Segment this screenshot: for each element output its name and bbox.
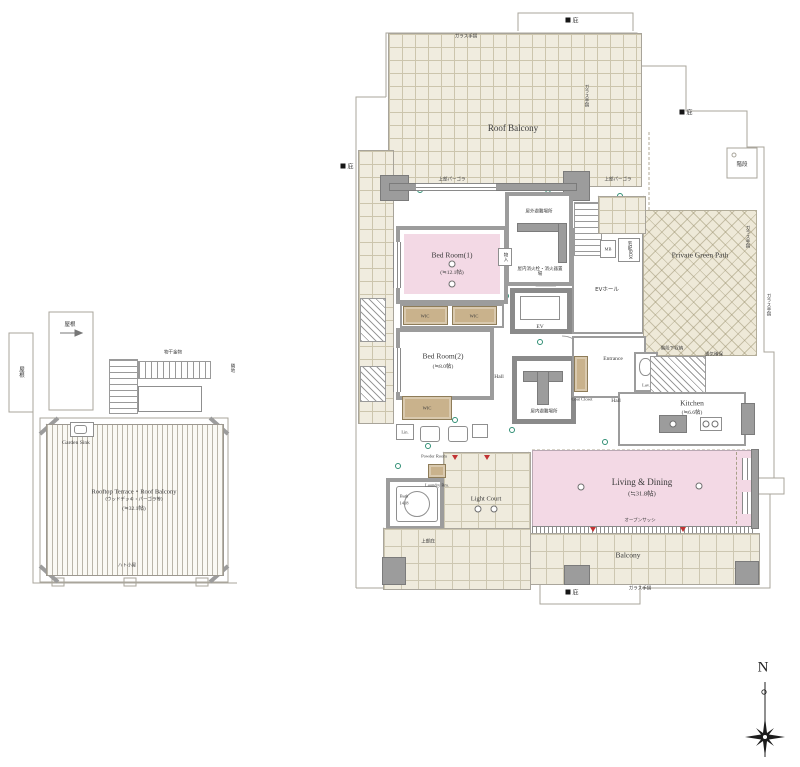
private-green-path-label: Private Green Path <box>672 252 729 261</box>
glass-rail-right2: ガラス手摺 <box>765 294 771 317</box>
burner-1 <box>703 421 710 428</box>
kitchen-name: Kitchen <box>680 400 704 409</box>
bottom-terrace-area <box>383 528 531 590</box>
refuge-inner-wall-v <box>559 224 566 262</box>
refuge-outdoor-label: 屋外避難場所 <box>526 209 553 214</box>
left-ladder-strip <box>138 361 211 379</box>
canopy-label-bottom: 庇 <box>565 588 578 597</box>
living-dining-area <box>532 450 756 528</box>
wic1-label: WIC <box>421 313 430 318</box>
hardware-label: 物干金物 <box>164 350 182 355</box>
roof-balcony-area <box>388 33 642 187</box>
glass-rail-right1: ガラス手摺 <box>744 226 750 249</box>
canopy-label-left: 庇 <box>340 162 353 171</box>
compass-north-label: N <box>758 659 769 676</box>
lav-label: Lav. <box>642 382 650 387</box>
refuge-indoor-label: 屋内避難場所 <box>531 409 558 414</box>
ev-label: EV <box>536 324 543 330</box>
roof-balcony-label: Roof Balcony <box>488 123 538 133</box>
compass-icon <box>745 682 785 757</box>
terrace-subtitle: (ウッドデッキ・パーゴラ等) <box>105 497 163 502</box>
opening-marker-1 <box>452 455 458 460</box>
louver-box-2 <box>360 366 386 402</box>
roof-b-label: 屋根 <box>64 322 75 328</box>
opening-marker-4 <box>680 527 686 532</box>
window-top-1 <box>416 183 496 191</box>
pergola-label-2: 上部パーゴラ <box>605 177 632 182</box>
canopy-label-right: 庇 <box>679 108 692 117</box>
light-symbol-ld2 <box>696 483 703 490</box>
under-stair-label: 階段下収納 <box>661 346 684 351</box>
living-dining-name: Living & Dining <box>612 477 673 487</box>
balcony-label: Balcony <box>616 552 641 561</box>
green-path-extension <box>598 196 646 234</box>
storage-box-hall <box>472 424 488 438</box>
bedroom1-area: (≒12.1帖) <box>440 270 463 276</box>
bedroom1-window-left <box>393 242 401 288</box>
light-symbol-ld1 <box>578 484 585 491</box>
pergola-label-1: 上部パーゴラ <box>439 177 466 182</box>
mb-label: MB <box>604 246 611 251</box>
open-sash-label: オープンサッシ <box>624 518 655 523</box>
opening-marker-3 <box>590 527 596 532</box>
terrace-area: (≒32.1帖) <box>122 506 145 512</box>
kitchen-area: (≒6.6帖) <box>682 410 703 416</box>
bath-label: Bath <box>400 493 409 498</box>
light-court-sym1 <box>475 506 482 513</box>
bedroom2-name: Bed Room(2) <box>422 353 463 362</box>
garden-sink-label: Garden Sink <box>62 440 90 446</box>
left-walkway <box>138 386 202 412</box>
roof-a-label: 屋根 <box>17 367 25 378</box>
laundry-box <box>428 464 446 478</box>
louver-box-1 <box>360 298 386 342</box>
bedroom2-area: (≒8.0帖) <box>433 364 454 370</box>
canopy-label-top: 庇 <box>565 16 578 25</box>
glass-rail-balcony: ガラス手摺 <box>629 586 651 591</box>
stair-box-label: 階段 <box>736 162 747 168</box>
linen-label: Lin. <box>401 429 408 434</box>
hatogoya-label: ハト小屋 <box>118 563 136 568</box>
light-symbol-br1b <box>449 281 456 288</box>
fixture-2 <box>448 426 468 442</box>
fixture-1 <box>420 426 440 442</box>
left-stairs <box>109 359 138 414</box>
wic2-label: WIC <box>470 313 479 318</box>
balcony-column-2 <box>736 562 758 584</box>
hall-label-east: Hall <box>611 398 620 404</box>
vent-label: 通気確保 <box>705 352 723 357</box>
hall-label-west: Hall <box>494 374 503 380</box>
bedroom1-name: Bed Room(1) <box>431 252 472 261</box>
private-green-path-area <box>643 210 757 356</box>
light-symbol-br1 <box>449 261 456 268</box>
coat-closet-label: Coat Closet <box>571 396 593 401</box>
floorplan-canvas: 屋根 屋根 物干金物 隣地 Garden Sink Rooftop Terrac… <box>0 0 800 767</box>
light-court-label: Light Court <box>471 495 502 502</box>
upper-eaves-label: 上部庇 <box>421 539 435 544</box>
neighbor-label: 隣地 <box>229 364 235 373</box>
garden-sink-bowl <box>74 425 87 434</box>
parcel-label: 宅配BOX <box>626 241 632 259</box>
ev-hall-label: EVホール <box>595 287 619 293</box>
monoire-label: 物入 <box>502 253 508 262</box>
ld-right-wall <box>752 450 758 528</box>
terrace-title: Rooftop Terrace・Roof Balcony <box>92 488 177 495</box>
glass-rail-mid: ガラス手摺 <box>583 85 589 108</box>
coat-closet-box <box>574 356 588 392</box>
balcony-column-1 <box>565 566 589 584</box>
entrance-label: Entrance <box>603 356 623 362</box>
bath-size-label: 1418 <box>400 500 409 505</box>
laundry-label: Laundry Rm. <box>425 482 449 487</box>
living-dining-area-label: (≒31.8帖) <box>628 490 656 497</box>
ev-car <box>520 296 560 320</box>
opening-marker-2 <box>484 455 490 460</box>
burner-2 <box>712 421 719 428</box>
wic3-label: WIC <box>423 405 432 410</box>
kitchen-right-wall <box>742 404 754 434</box>
powder-room-label: Powder Room <box>421 453 447 458</box>
refuge2-wall-v <box>538 372 548 404</box>
extinguisher-label: 屋内消火栓・消火器置場 <box>516 267 564 277</box>
terrace-column-sw <box>383 558 405 584</box>
glass-rail-top: ガラス手摺 <box>455 34 477 39</box>
light-court-sym2 <box>491 506 498 513</box>
ld-dashed-divider <box>736 452 738 524</box>
sink-symbol <box>670 421 677 428</box>
balcony-area <box>528 533 760 585</box>
bedroom2-window-left <box>393 348 401 392</box>
